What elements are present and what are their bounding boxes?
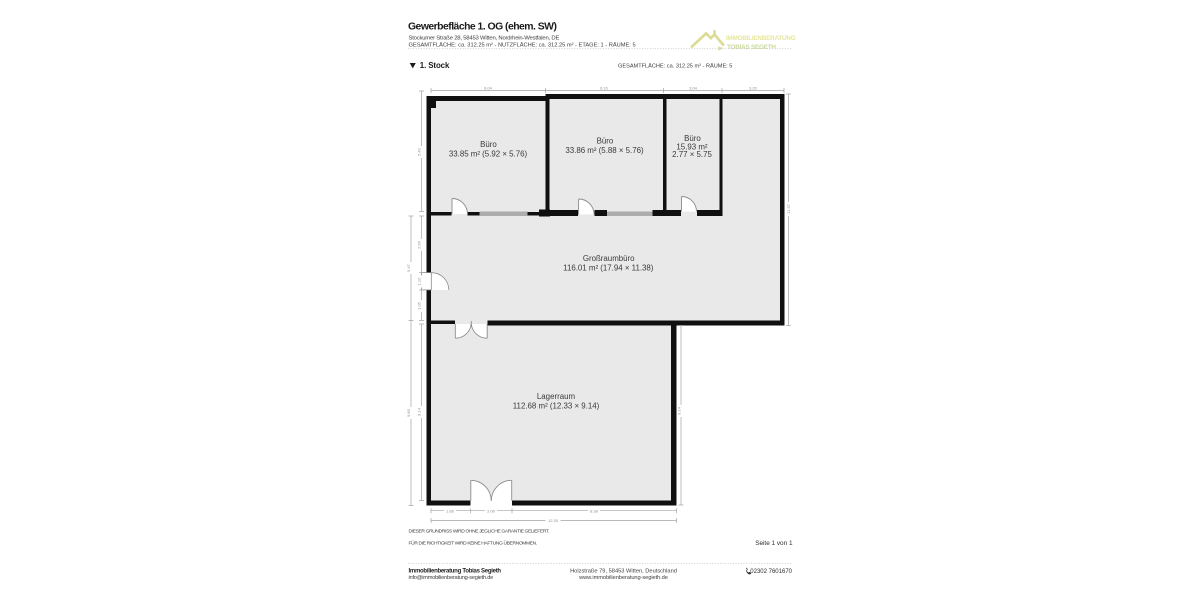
svg-text:9.80: 9.80 — [406, 408, 411, 417]
svg-text:02302 7601670: 02302 7601670 — [750, 569, 792, 575]
svg-text:8.38: 8.38 — [590, 508, 599, 513]
svg-text:3.20: 3.20 — [749, 85, 758, 90]
svg-text:Holzstraße 79, 58453 Witten, D: Holzstraße 79, 58453 Witten, Deutschland — [570, 569, 677, 575]
svg-text:Seite 1 von 1: Seite 1 von 1 — [755, 540, 793, 547]
svg-text:Lagerraum: Lagerraum — [537, 392, 576, 401]
svg-text:112.68 m² (12.33 × 9.14): 112.68 m² (12.33 × 9.14) — [513, 402, 600, 411]
svg-text:5.47: 5.47 — [406, 263, 411, 272]
svg-text:33.85 m² (5.92 × 5.76): 33.85 m² (5.92 × 5.76) — [449, 150, 528, 159]
svg-text:Büro: Büro — [480, 140, 497, 149]
svg-text:Großraumbüro: Großraumbüro — [583, 254, 635, 263]
svg-text:GESAMTFLÄCHE: ca. 312.25 m² -: GESAMTFLÄCHE: ca. 312.25 m² - NUTZFLÄCHE… — [409, 42, 636, 49]
svg-text:TOBIAS SEGETH: TOBIAS SEGETH — [727, 44, 776, 51]
svg-text:9.14: 9.14 — [417, 407, 422, 416]
svg-text:DIESER GRUNDRISS WIRD OHNE JEG: DIESER GRUNDRISS WIRD OHNE JEGLICHE GARA… — [409, 529, 549, 535]
svg-text:2.96: 2.96 — [417, 240, 422, 249]
svg-text:www.immobilienberatung-segieth: www.immobilienberatung-segieth.de — [578, 575, 668, 581]
svg-text:6.04: 6.04 — [484, 85, 493, 90]
svg-text:2.06: 2.06 — [487, 508, 496, 513]
svg-text:Immobilienberatung Tobias Segi: Immobilienberatung Tobias Segieth — [409, 569, 502, 575]
svg-text:9.14: 9.14 — [676, 406, 681, 415]
svg-text:info@immobilienberatung-segiet: info@immobilienberatung-segieth.de — [409, 575, 494, 581]
svg-text:FÜR DIE RICHTIGKEIT WIRD KEINE: FÜR DIE RICHTIGKEIT WIRD KEINE HAFTUNG Ü… — [409, 540, 537, 547]
svg-text:116.01 m² (17.94 × 11.38): 116.01 m² (17.94 × 11.38) — [563, 263, 654, 272]
svg-text:12.30: 12.30 — [548, 518, 559, 523]
svg-text:33.86 m² (5.88 × 5.76): 33.86 m² (5.88 × 5.76) — [565, 146, 644, 155]
svg-text:IMMOBILIENBERATUNG: IMMOBILIENBERATUNG — [726, 35, 796, 42]
svg-text:Büro: Büro — [597, 137, 614, 146]
svg-text:GESAMTFLÄCHE: ca. 312.25 m² -: GESAMTFLÄCHE: ca. 312.25 m² - RÄUME: 5 — [618, 63, 732, 70]
svg-text:1.10: 1.10 — [417, 277, 422, 286]
svg-text:3.04: 3.04 — [689, 85, 698, 90]
svg-text:1.86: 1.86 — [446, 508, 455, 513]
svg-text:Stockumer Straße 28, 58453 Wit: Stockumer Straße 28, 58453 Witten, Nordr… — [409, 36, 560, 42]
svg-text:Gewerbefläche 1. OG (ehem. SW): Gewerbefläche 1. OG (ehem. SW) — [408, 22, 556, 33]
svg-text:5.42: 5.42 — [417, 147, 422, 156]
svg-text:1. Stock: 1. Stock — [420, 61, 450, 70]
svg-text:11.37: 11.37 — [786, 203, 791, 213]
svg-text:6.10: 6.10 — [600, 85, 609, 90]
svg-text:1.05: 1.05 — [417, 301, 422, 310]
svg-text:2.77 × 5.75: 2.77 × 5.75 — [672, 150, 712, 159]
